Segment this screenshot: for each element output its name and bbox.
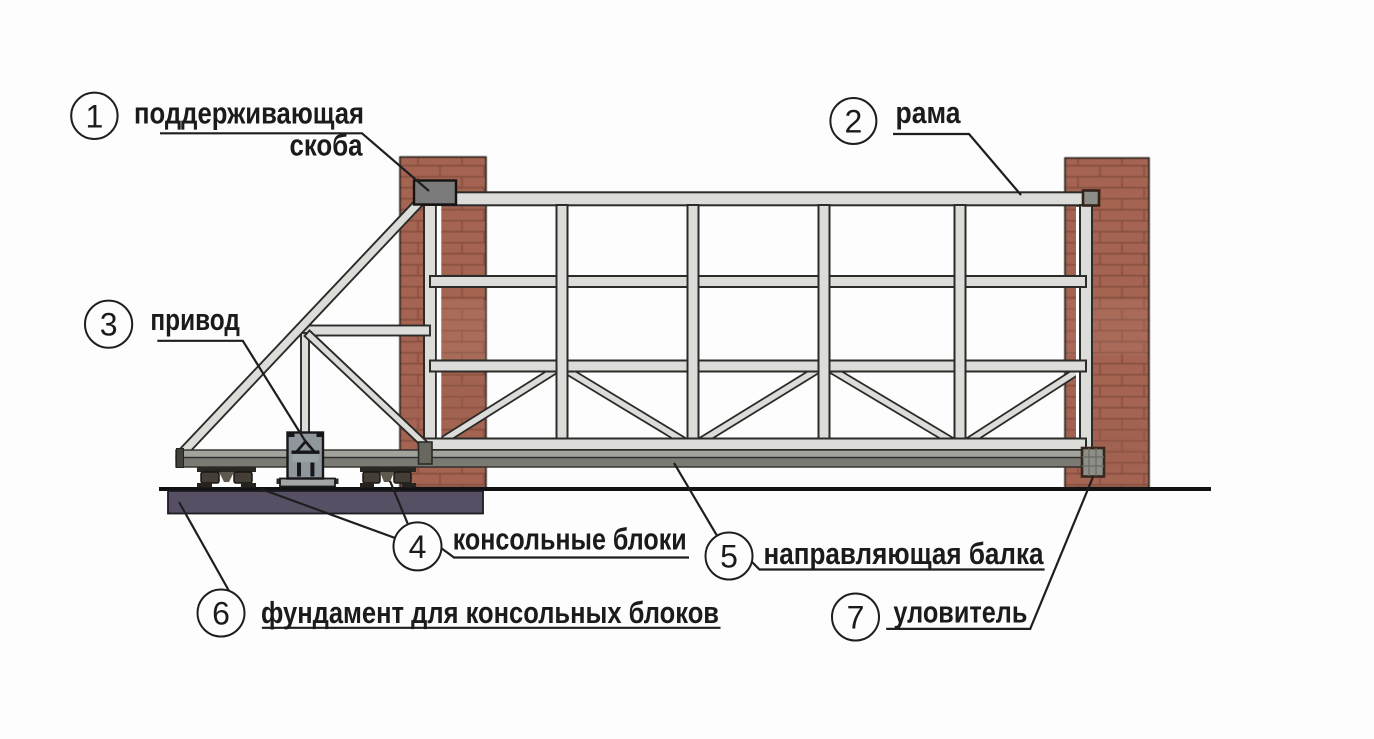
svg-text:фундамент для консольных блоко: фундамент для консольных блоков: [261, 595, 719, 630]
svg-text:2: 2: [845, 104, 863, 140]
svg-text:поддерживающая: поддерживающая: [134, 96, 364, 131]
svg-text:7: 7: [847, 600, 865, 636]
svg-text:привод: привод: [150, 302, 240, 337]
svg-text:1: 1: [86, 98, 104, 134]
svg-text:4: 4: [409, 529, 427, 565]
svg-text:6: 6: [212, 596, 230, 632]
svg-text:консольные блоки: консольные блоки: [453, 522, 687, 557]
svg-text:скоба: скоба: [290, 128, 364, 163]
svg-text:рама: рама: [896, 95, 962, 130]
svg-text:направляющая балка: направляющая балка: [764, 536, 1045, 571]
svg-text:уловитель: уловитель: [893, 595, 1027, 630]
svg-text:3: 3: [100, 307, 118, 343]
svg-text:5: 5: [720, 539, 738, 575]
